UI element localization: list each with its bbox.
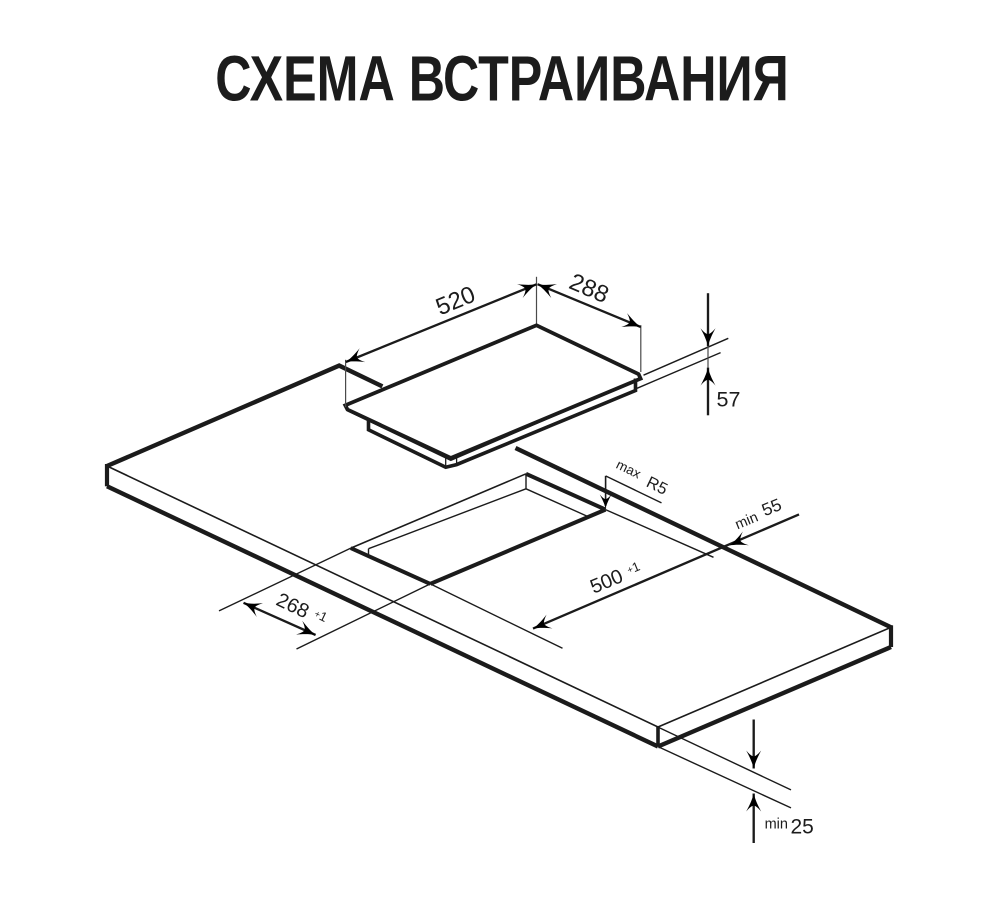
svg-text:СХЕМА ВСТРАИВАНИЯ: СХЕМА ВСТРАИВАНИЯ xyxy=(215,44,788,115)
svg-text:520: 520 xyxy=(432,281,479,321)
svg-text:min: min xyxy=(765,817,788,833)
svg-text:500: 500 xyxy=(587,565,626,598)
svg-text:57: 57 xyxy=(717,388,741,412)
svg-text:min: min xyxy=(733,509,761,533)
svg-text:R5: R5 xyxy=(644,473,671,498)
svg-text:25: 25 xyxy=(791,816,814,839)
svg-text:288: 288 xyxy=(565,268,612,309)
svg-text:max: max xyxy=(614,457,644,482)
svg-text:+1: +1 xyxy=(312,606,330,625)
svg-text:+1: +1 xyxy=(624,558,642,577)
svg-text:55: 55 xyxy=(759,494,785,520)
